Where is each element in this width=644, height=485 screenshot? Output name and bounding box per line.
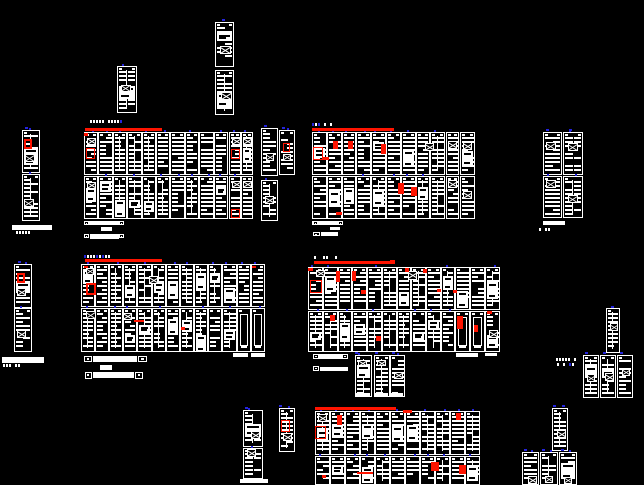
line-segment [263,213,270,215]
line-segment [443,473,449,475]
line-segment [287,167,293,169]
panel-cabinet[interactable] [22,174,40,221]
symbol-box [138,356,147,362]
line-segment [524,469,531,471]
red-mark [337,415,342,425]
microtext-glyph [324,123,326,126]
line-segment [574,165,581,167]
line-segment [428,428,434,430]
line-segment [625,360,631,362]
line-segment [245,461,253,463]
line-segment [549,465,556,467]
line-segment [31,135,38,137]
line-segment [225,75,232,77]
line-segment [591,384,597,386]
line-segment [445,413,448,415]
line-segment [574,169,581,171]
line-segment [554,417,561,419]
line-segment [23,301,30,303]
line-segment [382,368,388,370]
line-segment [288,406,290,408]
line-segment [524,457,531,459]
line-segment [473,428,479,430]
red-highlight-box [17,273,25,283]
red-mark [84,266,88,268]
line-segment [413,465,419,467]
blue-tick [611,306,614,308]
line-segment [574,137,581,139]
line-segment [290,410,293,412]
microtext-glyph [96,120,98,123]
line-segment [524,465,531,467]
busbar-red-line[interactable] [85,259,162,262]
caption-strip [320,367,348,371]
line-segment [565,137,573,139]
line-segment [368,420,374,422]
line-segment [553,209,560,211]
line-segment [382,376,388,378]
line-segment [407,458,410,460]
line-segment [608,364,614,366]
line-segment [334,427,341,429]
line-segment [16,266,19,268]
microtext-glyph [114,120,116,123]
line-segment [353,477,359,479]
line-segment [383,420,389,422]
line-segment [398,461,404,463]
red-mark [381,144,386,154]
line-segment [560,441,566,443]
breaker-x-symbol [243,138,252,145]
caption-strip [93,372,134,378]
line-segment [225,87,232,89]
microtext-glyph [330,123,332,126]
line-segment [119,103,127,105]
line-segment [24,215,31,217]
busbar-red-line[interactable] [85,128,162,131]
line-segment [368,416,374,418]
line-segment [364,435,370,437]
line-segment [428,436,434,438]
line-segment [619,388,626,390]
line-segment [473,448,479,450]
line-segment [247,426,259,428]
line-segment [362,458,365,460]
line-segment [473,444,479,446]
line-segment [560,421,566,423]
line-segment [225,43,232,45]
caption-strip [356,393,370,397]
red-highlight-box [231,209,240,218]
microtext-glyph [120,120,122,123]
line-segment [531,469,537,471]
line-segment [353,469,359,471]
line-segment [251,446,253,448]
line-segment [383,461,389,463]
caption-strip [330,227,340,230]
microtext-glyph [99,255,101,258]
line-segment [443,428,449,430]
line-segment [319,454,321,456]
line-segment [585,357,588,359]
line-segment [24,183,31,185]
busbar-red-line[interactable] [312,128,394,131]
line-segment [355,413,358,415]
line-segment [24,132,27,134]
line-segment [437,416,443,418]
microtext-glyph [19,231,21,234]
microtext-glyph [117,120,119,123]
line-segment [225,83,232,85]
line-segment [119,71,127,73]
caption-strip [101,227,112,231]
line-segment [458,432,464,434]
line-segment [281,445,288,447]
line-segment [119,99,127,101]
breaker-x-symbol [265,196,274,204]
breaker-x-symbol [243,181,252,188]
line-segment [217,83,225,85]
line-segment [578,134,581,136]
line-segment [545,157,553,159]
line-segment [574,157,581,159]
busbar-red-line[interactable] [314,261,395,264]
red-mark [457,316,463,329]
line-segment [542,469,549,471]
blue-tick [282,127,285,129]
line-segment [317,469,323,471]
line-segment [398,420,404,422]
breaker-x-symbol [448,141,457,149]
red-mark [322,157,329,160]
line-segment [334,467,341,469]
line-segment [357,380,364,382]
breaker-x-symbol [546,142,556,150]
line-segment [245,419,253,421]
microtext-glyph [563,363,565,366]
line-segment [377,465,383,467]
red-mark [336,271,340,282]
caption-strip [318,354,342,359]
line-segment [531,450,533,452]
line-segment [467,458,470,460]
line-segment [382,380,388,382]
line-segment [24,167,31,169]
microtext-glyph [318,123,320,126]
line-segment [613,337,618,339]
breaker-x-symbol [545,476,553,483]
breaker-x-symbol [377,360,386,366]
line-segment [545,134,548,136]
line-segment [281,132,284,134]
line-segment [281,410,284,412]
line-segment [24,176,27,178]
line-segment [428,416,434,418]
line-segment [347,413,350,415]
line-segment [245,473,253,475]
line-segment [23,269,30,271]
line-segment [613,317,618,319]
line-segment [545,201,553,203]
line-segment [565,189,573,191]
line-segment [353,465,359,467]
breaker-x-symbol [283,154,291,161]
line-segment [524,473,531,475]
symbol-box [313,221,318,225]
line-segment [353,448,359,450]
line-segment [422,473,428,475]
line-segment [270,213,276,215]
line-segment [398,364,404,366]
line-segment [357,384,364,386]
line-segment [334,470,340,472]
line-segment [263,182,266,184]
caption-strip [240,479,268,483]
line-segment [355,458,358,460]
line-segment [392,413,395,415]
line-segment [26,150,36,152]
breaker-x-symbol [87,138,96,145]
breaker-x-symbol [489,330,498,338]
line-segment [383,473,389,475]
line-segment [383,469,389,471]
line-segment [398,380,404,382]
red-highlight-box [86,283,96,295]
line-segment [362,413,365,415]
blue-tick [603,352,606,354]
line-segment [400,458,403,460]
caption-strip [90,234,119,239]
line-segment [430,458,433,460]
symbol-box [84,356,92,362]
line-segment [473,461,479,463]
line-segment [263,145,270,147]
line-segment [608,392,614,394]
line-segment [122,64,124,66]
caption-strip [85,221,123,225]
line-segment [524,461,531,463]
microtext-glyph [314,256,316,259]
symbol-box [135,372,143,379]
line-segment [574,181,581,183]
caption-strip [321,232,338,236]
line-segment [23,325,30,327]
line-segment [531,461,537,463]
breaker-x-symbol [425,143,434,151]
breaker-x-symbol [232,181,241,188]
line-segment [549,469,556,471]
line-segment [452,440,458,442]
line-segment [428,477,434,479]
line-segment [254,469,261,471]
microtext-glyph [84,255,86,258]
line-segment [545,213,553,215]
microtext-glyph [102,255,104,258]
busbar-red-line[interactable] [315,407,396,410]
line-segment [397,353,399,355]
microtext-glyph [28,231,30,234]
line-segment [281,139,288,141]
line-segment [398,465,404,467]
line-segment [24,195,31,197]
breaker-x-symbol [546,180,556,188]
red-highlight-box [231,149,240,159]
line-segment [245,457,253,459]
line-segment [413,461,419,463]
line-segment [409,427,416,429]
line-segment [591,388,597,390]
line-segment [398,473,404,475]
blue-tick [222,19,225,21]
breaker-x-symbol [318,414,327,422]
line-segment [119,68,122,70]
line-segment [353,424,359,426]
line-segment [119,107,127,109]
line-segment [565,181,573,183]
red-mark [403,410,412,413]
line-segment [383,448,389,450]
line-segment [24,207,31,209]
breaker-x-symbol [528,476,537,484]
line-segment [29,172,31,174]
red-mark [330,315,335,321]
line-segment [443,432,449,434]
switchgear-cluster-bottom-edge[interactable] [0,0,644,485]
line-segment [217,72,220,74]
line-segment [263,141,270,143]
breaker-x-symbol [86,268,94,275]
breaker-x-symbol [448,180,457,188]
line-segment [225,55,232,57]
breaker-x-symbol [587,374,595,382]
line-segment [565,169,573,171]
line-segment [353,416,359,418]
microtext-glyph [572,363,574,366]
breaker-x-symbol [358,360,367,366]
line-segment [553,161,560,163]
blue-tick [524,449,527,451]
red-mark [456,413,461,420]
line-segment [398,360,404,362]
line-segment [359,374,365,376]
line-segment [357,388,364,390]
line-segment [16,345,23,347]
symbol-box [84,234,89,238]
line-segment [334,433,340,435]
line-segment [287,128,289,130]
line-segment [270,209,276,211]
line-segment [452,458,455,460]
line-segment [384,454,386,456]
caption-strip [485,353,497,356]
line-segment [553,137,560,139]
line-segment [217,87,225,89]
line-segment [16,317,23,319]
line-segment [24,179,31,181]
breaker-x-symbol [221,92,232,100]
microtext-glyph [111,120,113,123]
blue-tick [245,407,248,409]
red-mark [322,475,326,478]
line-segment [565,165,573,167]
line-segment [385,458,388,460]
line-segment [383,428,389,430]
line-segment [128,99,135,101]
red-mark [333,141,338,149]
line-segment [545,161,553,163]
caption-strip [100,365,112,370]
line-segment [263,193,270,195]
line-segment [574,189,581,191]
breaker-x-symbol [564,477,572,484]
line-segment [354,454,356,456]
line-segment [217,75,225,77]
line-segment [392,448,398,450]
line-segment [29,128,31,130]
line-segment [469,468,476,470]
line-segment [443,424,449,426]
line-segment [553,193,560,195]
line-segment [413,448,419,450]
line-segment [458,444,464,446]
blue-tick [392,352,395,354]
line-segment [619,384,626,386]
line-segment [16,341,23,343]
line-segment [561,457,568,459]
line-segment [347,444,353,446]
line-segment [591,392,597,394]
microtext-glyph [548,228,550,231]
caption-strip [233,353,248,357]
line-segment [424,409,426,411]
line-segment [398,384,404,386]
red-highlight-box [310,280,322,293]
line-segment [602,357,605,359]
line-segment [553,454,556,456]
line-segment [263,205,270,207]
line-segment [24,135,31,137]
line-segment [128,71,135,73]
line-segment [473,416,479,418]
line-segment [422,420,428,422]
red-mark [474,325,478,332]
line-segment [377,424,383,426]
breaker-x-symbol [622,369,630,376]
line-segment [545,153,553,155]
line-segment [254,457,261,459]
line-segment [534,454,537,456]
line-segment [364,380,370,382]
line-segment [569,450,571,452]
line-segment [394,428,401,430]
line-segment [396,409,398,411]
blue-tick [561,449,564,451]
red-mark [453,290,457,293]
line-segment [545,165,553,167]
blue-tick [355,352,358,354]
cad-canvas[interactable] [0,0,644,485]
red-mark [348,141,353,149]
line-segment [332,448,338,450]
microtext-glyph [87,255,89,258]
line-segment [591,360,597,362]
line-segment [524,454,527,456]
microtext-glyph [3,364,5,367]
line-segment [625,380,631,382]
microtext-glyph [539,228,541,231]
caption-strip [391,393,403,397]
line-segment [413,416,419,418]
